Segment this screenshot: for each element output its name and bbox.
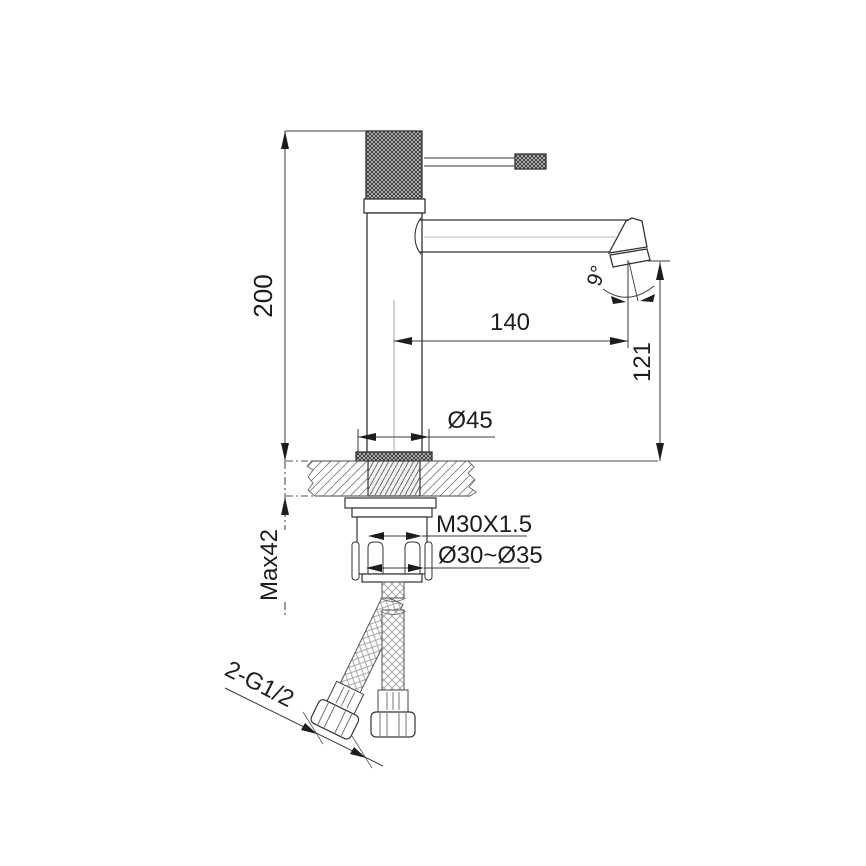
washer-flange: [345, 498, 436, 508]
arrow-down-icon: [281, 443, 289, 461]
arrow-up-icon: [281, 131, 289, 149]
hose-connection-label: 2-G1/2: [221, 656, 299, 713]
overall-height-label: 200: [248, 274, 278, 317]
hose-nut-vertical: [371, 712, 415, 737]
base-diameter-label: Ø45: [447, 407, 492, 434]
lever-rod: [424, 154, 546, 169]
arrow-icon: [350, 747, 366, 758]
hole-range-label: Ø30~Ø35: [438, 542, 543, 569]
mounting-hardware: [345, 498, 436, 582]
counter-deck: [286, 461, 658, 496]
spout-tip: [609, 218, 650, 267]
deck-left-section: [307, 461, 368, 496]
handle-knurled: [366, 131, 422, 199]
spout-angle-label: 9°: [583, 263, 611, 289]
arrow-down-icon: [656, 443, 664, 461]
dimension-lines: [225, 131, 670, 768]
handle-neck: [364, 199, 425, 213]
arrow-up-icon: [281, 497, 289, 515]
max-thickness-label: Max42: [256, 529, 283, 601]
faucet-body: [356, 131, 650, 461]
washer-step: [352, 508, 432, 517]
deck-right-section: [420, 461, 476, 496]
arrow-right-icon: [610, 337, 628, 345]
spout-arm: [415, 218, 630, 254]
drawing-canvas: 200 140 121 9° Ø45 M30X1.5 Ø30~Ø35 Max42…: [0, 0, 866, 866]
riser-column: [367, 213, 422, 452]
arrow-icon: [301, 723, 317, 734]
faucet-technical-drawing: 200 140 121 9° Ø45 M30X1.5 Ø30~Ø35 Max42…: [0, 0, 866, 866]
dim-angle-9: [603, 262, 655, 304]
dim-140: [394, 260, 628, 452]
arrow-left-icon: [640, 294, 655, 302]
nut-bottom-cap: [362, 574, 422, 582]
outlet-height-label: 121: [629, 342, 656, 382]
base-gasket: [356, 452, 432, 461]
arrow-up-icon: [656, 262, 664, 280]
mounting-thread-label: M30X1.5: [436, 511, 532, 538]
spout-reach-label: 140: [490, 309, 530, 336]
dim-200: [281, 131, 366, 461]
threaded-shank: [368, 461, 420, 496]
